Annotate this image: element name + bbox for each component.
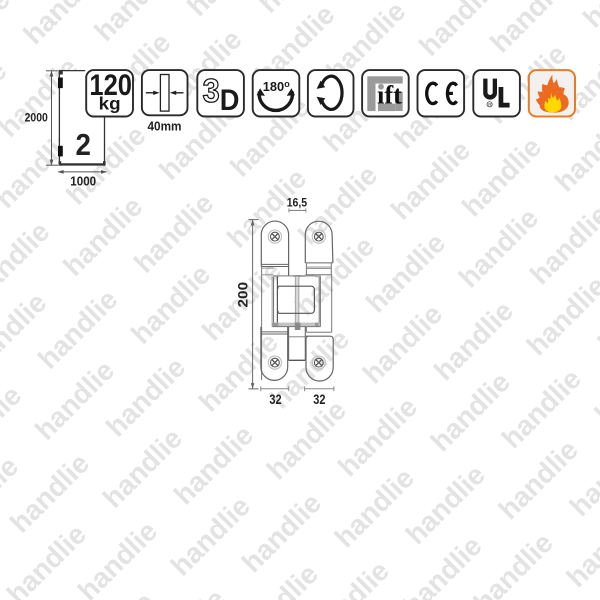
- svg-text:2: 2: [76, 127, 91, 162]
- svg-text:D: D: [220, 84, 240, 117]
- svg-text:1000: 1000: [70, 174, 96, 189]
- svg-text:kg: kg: [99, 93, 121, 113]
- svg-text:o: o: [284, 79, 290, 89]
- svg-text:200: 200: [235, 282, 251, 308]
- svg-text:32: 32: [269, 392, 282, 407]
- svg-text:16,5: 16,5: [287, 196, 308, 210]
- svg-text:40mm: 40mm: [148, 118, 182, 133]
- svg-text:2000: 2000: [25, 111, 49, 125]
- svg-text:180: 180: [263, 79, 284, 94]
- svg-text:3: 3: [203, 73, 220, 110]
- svg-text:32: 32: [313, 392, 326, 407]
